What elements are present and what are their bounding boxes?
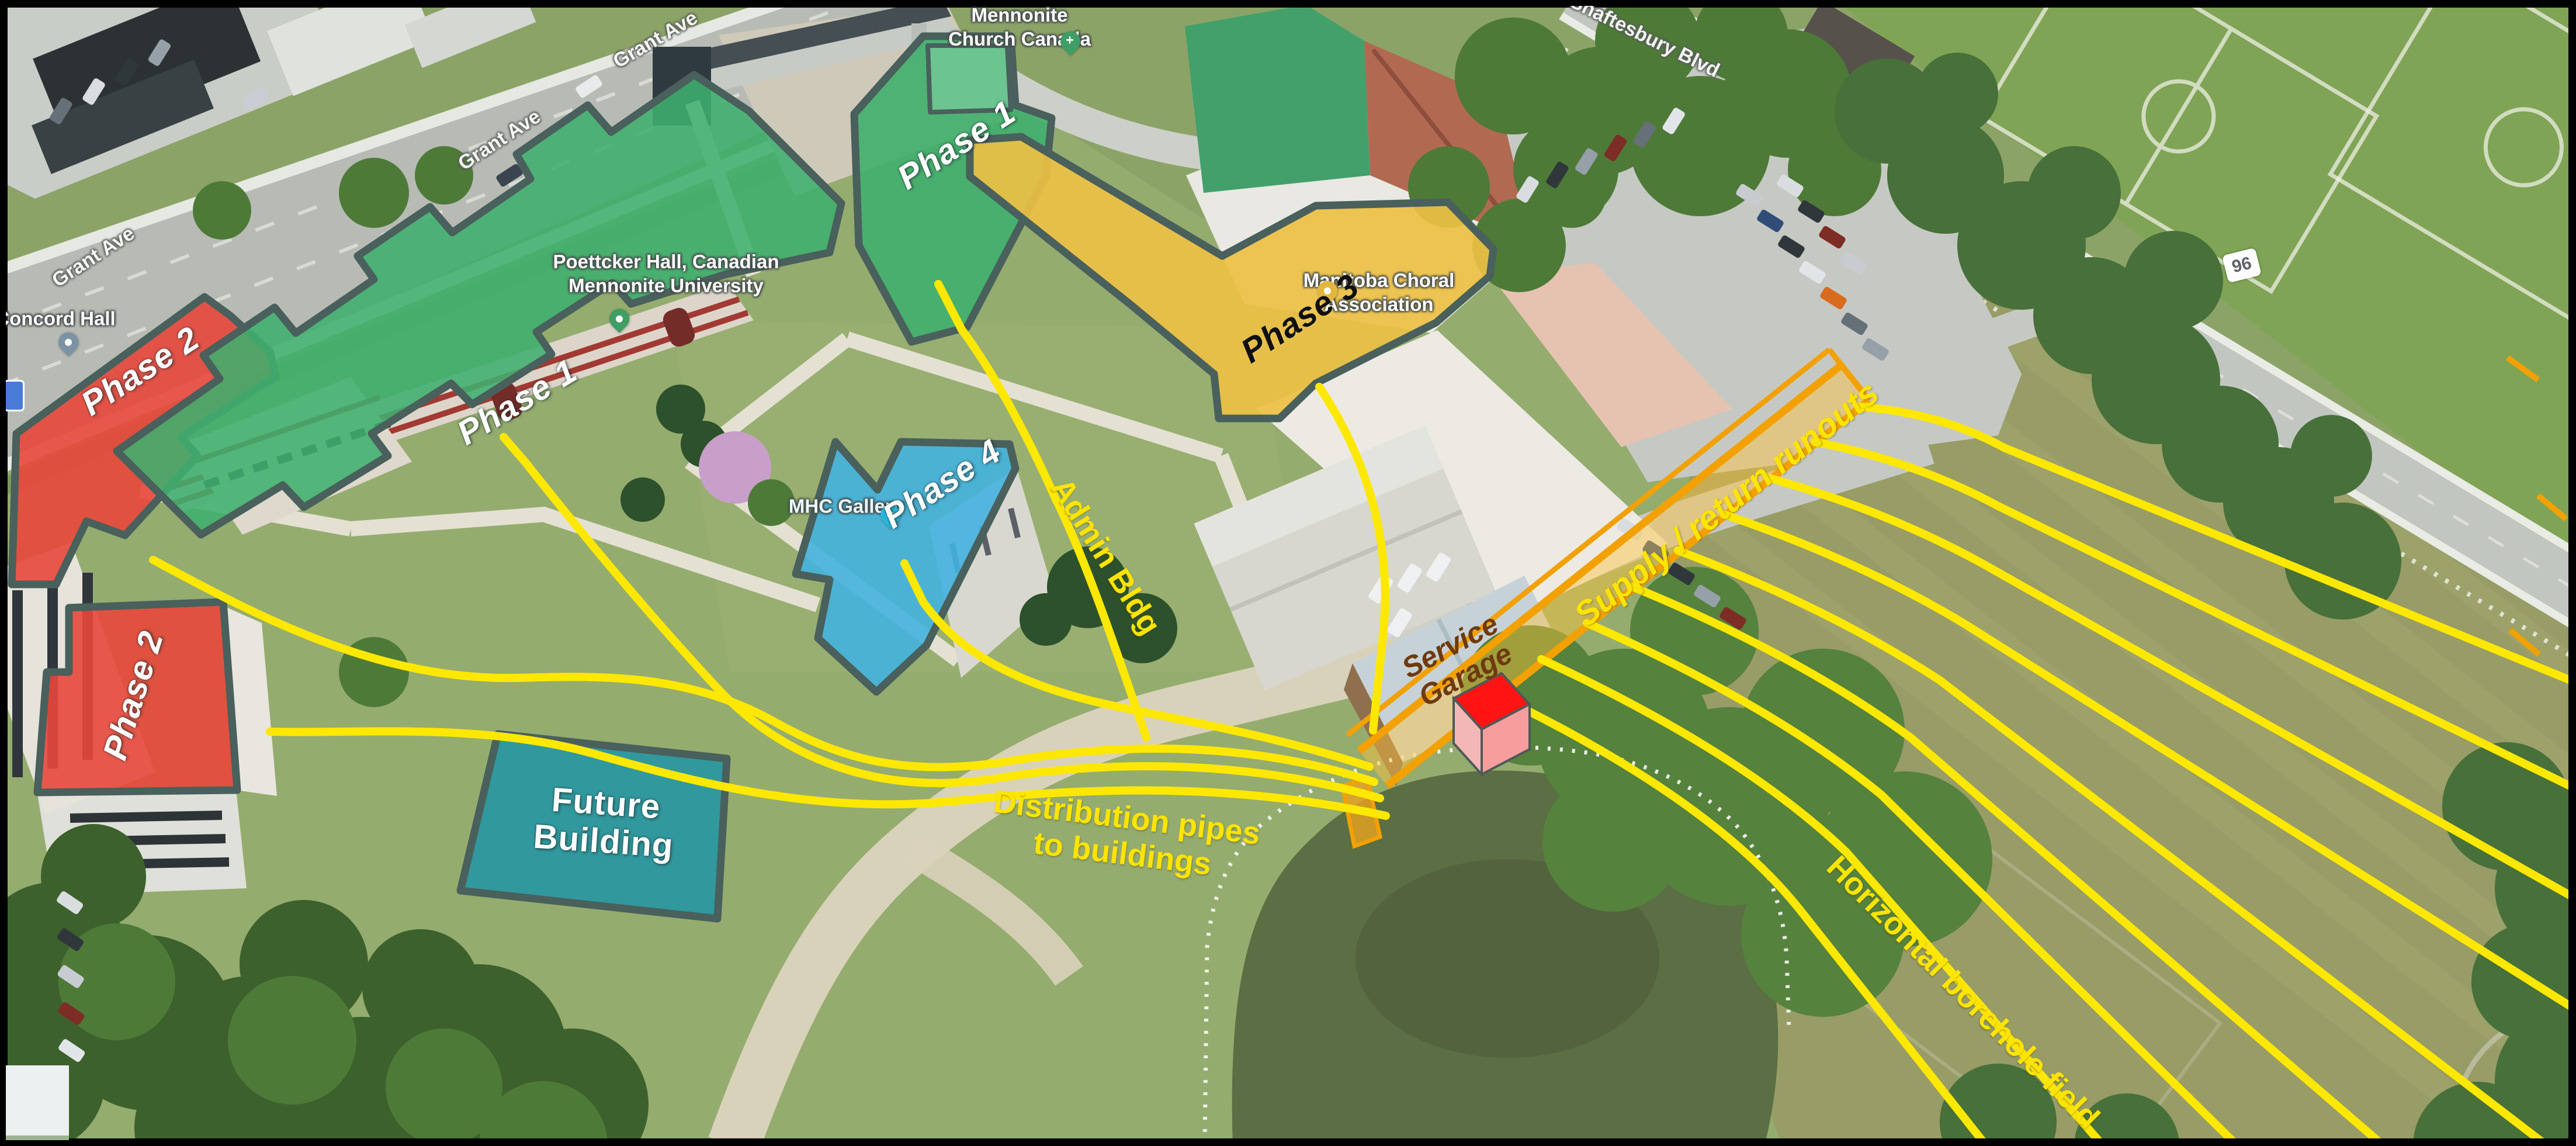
satellite-map [0,0,2576,1146]
poi-concord-hall: Concord Hall [0,306,116,330]
poi-poettcker-hall: Poettcker Hall, Canadian Mennonite Unive… [553,250,779,298]
route-shield-number: 96 [2230,253,2254,277]
future-building-label: Future Building [532,780,677,865]
annotated-campus-map: Grant Ave Grant Ave Grant Ave Shaftesbur… [0,0,2576,1146]
road-sign-icon [4,380,25,411]
corner-cover-box [5,1065,69,1140]
